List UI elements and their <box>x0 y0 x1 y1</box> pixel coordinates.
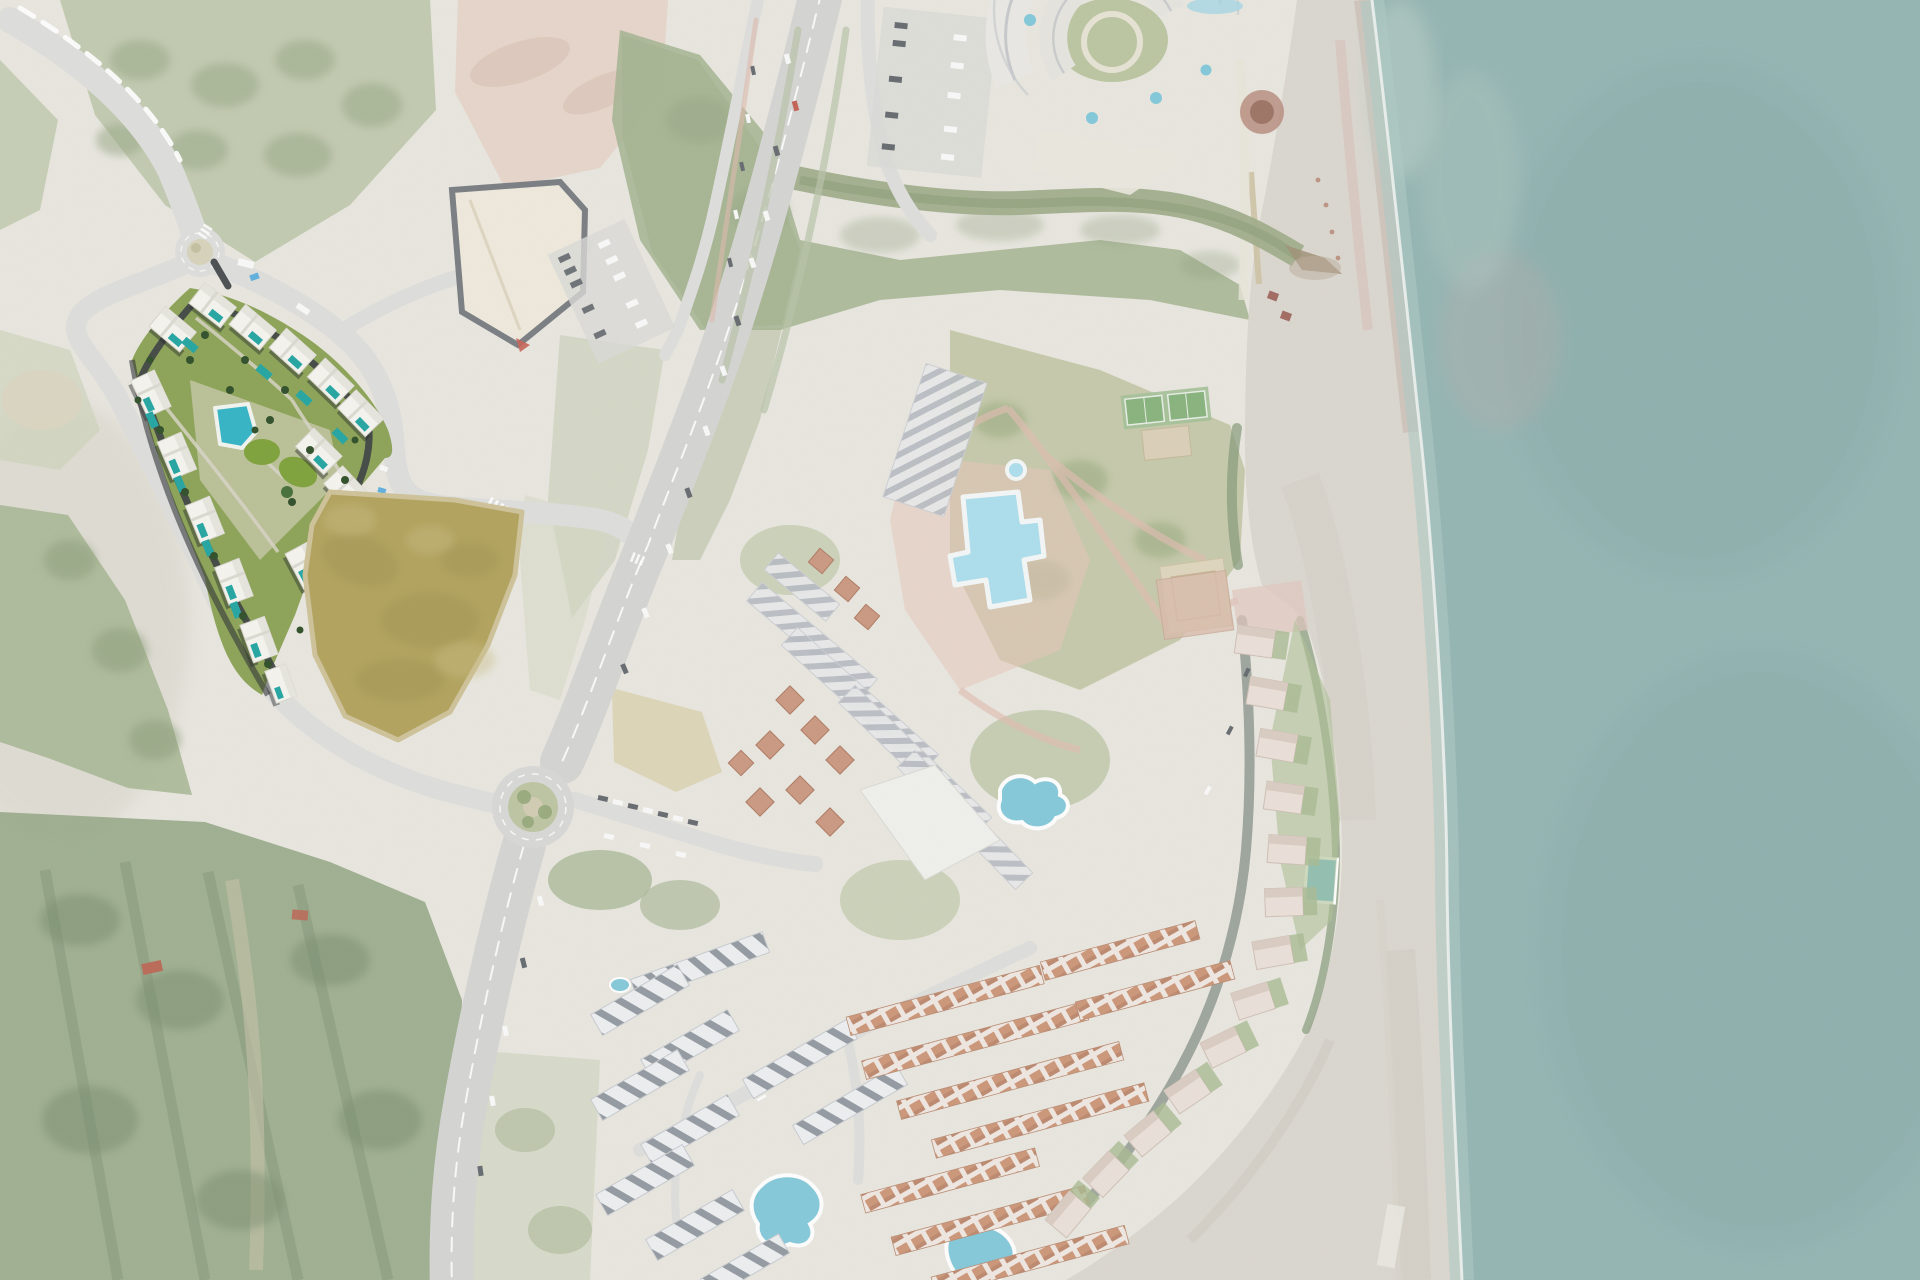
aerial-map <box>0 0 1920 1280</box>
satellite-canvas <box>0 0 1920 1280</box>
film-grain <box>0 0 1920 1280</box>
